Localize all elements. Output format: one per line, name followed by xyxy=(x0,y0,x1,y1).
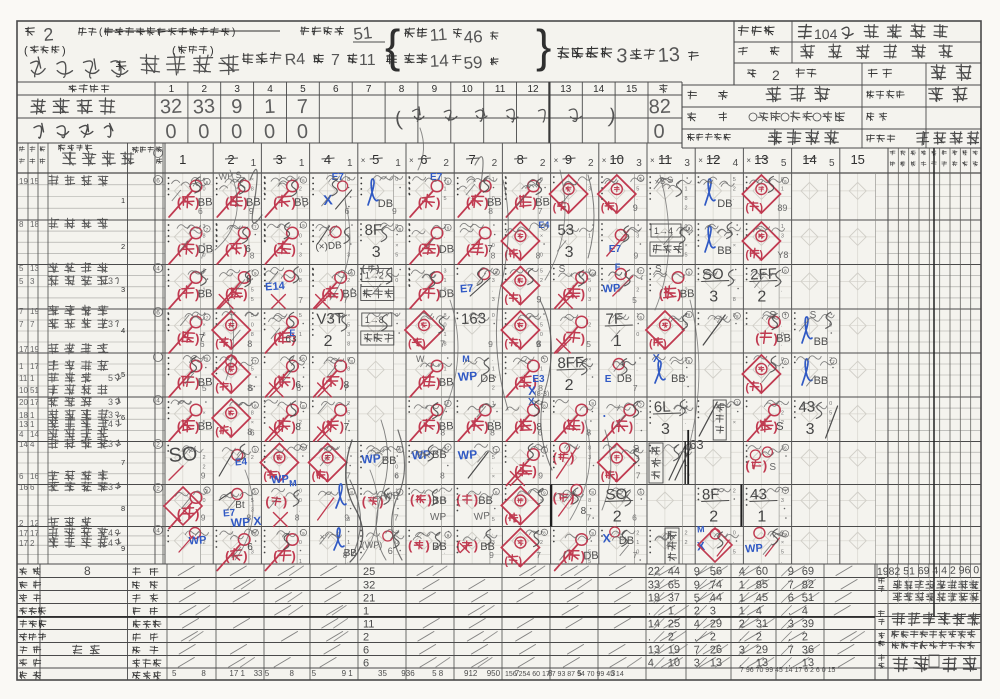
svg-text:8F: 8F xyxy=(364,221,382,239)
svg-text:14: 14 xyxy=(802,152,816,167)
svg-text:9: 9 xyxy=(489,550,494,560)
svg-text:9: 9 xyxy=(694,579,701,591)
svg-text:BB: BB xyxy=(439,376,454,389)
svg-text:6: 6 xyxy=(198,206,203,216)
svg-text:2: 2 xyxy=(781,411,784,417)
svg-text:×: × xyxy=(685,243,688,249)
svg-text:): ) xyxy=(518,249,522,261)
svg-text:18: 18 xyxy=(19,411,28,420)
svg-text:1: 1 xyxy=(299,559,302,565)
svg-text:11: 11 xyxy=(19,374,28,383)
svg-text:3: 3 xyxy=(636,455,639,461)
svg-text:(: ( xyxy=(408,538,413,553)
svg-text:36: 36 xyxy=(802,644,815,657)
svg-text:17: 17 xyxy=(30,529,39,538)
svg-text:): ) xyxy=(663,338,667,350)
svg-text:×: × xyxy=(395,243,398,249)
svg-text:8: 8 xyxy=(343,550,348,560)
svg-text:): ) xyxy=(243,287,248,302)
svg-text:7: 7 xyxy=(344,383,349,393)
svg-text:0: 0 xyxy=(829,323,832,329)
svg-text:5: 5 xyxy=(829,411,832,417)
svg-text:5: 5 xyxy=(444,196,447,202)
svg-text:(: ( xyxy=(215,426,219,438)
svg-text:(: ( xyxy=(265,494,270,509)
svg-text:7: 7 xyxy=(331,52,340,69)
svg-text:9: 9 xyxy=(536,295,541,305)
svg-text:(: ( xyxy=(745,458,750,473)
svg-text:E14: E14 xyxy=(265,280,286,293)
svg-text:3: 3 xyxy=(616,45,628,68)
svg-text:19: 19 xyxy=(30,345,39,354)
svg-text:(: ( xyxy=(745,249,749,261)
svg-text:S: S xyxy=(810,310,817,321)
svg-text:2: 2 xyxy=(363,632,369,644)
svg-text:6: 6 xyxy=(363,645,369,657)
svg-text:32: 32 xyxy=(159,95,182,118)
svg-text:51: 51 xyxy=(802,592,815,605)
svg-text:12: 12 xyxy=(706,152,720,167)
svg-text:): ) xyxy=(759,249,763,261)
svg-text:(: ( xyxy=(263,471,267,483)
svg-text:9: 9 xyxy=(392,206,397,216)
svg-text:WP: WP xyxy=(457,447,477,462)
svg-text:5: 5 xyxy=(108,373,113,383)
svg-text:8: 8 xyxy=(517,152,524,167)
svg-text:): ) xyxy=(62,45,66,57)
svg-text:1: 1 xyxy=(685,187,688,193)
svg-text:(: ( xyxy=(601,471,605,483)
svg-text:9 1: 9 1 xyxy=(342,669,354,678)
svg-text:85: 85 xyxy=(756,579,769,592)
svg-text:WP: WP xyxy=(474,511,491,523)
svg-text:2: 2 xyxy=(492,386,495,392)
svg-text:3: 3 xyxy=(684,158,690,169)
svg-text:F: F xyxy=(615,262,621,272)
svg-text:1: 1 xyxy=(363,606,369,618)
svg-text:5: 5 xyxy=(203,420,206,426)
svg-text:1: 1 xyxy=(636,540,639,546)
svg-text:(: ( xyxy=(410,492,415,507)
svg-text:89: 89 xyxy=(777,203,787,213)
svg-text:(: ( xyxy=(553,202,557,214)
svg-text:6: 6 xyxy=(156,178,160,185)
svg-text:5: 5 xyxy=(172,669,177,678)
svg-text:5: 5 xyxy=(19,277,24,286)
svg-text:15: 15 xyxy=(30,177,39,186)
svg-text:7: 7 xyxy=(366,84,372,95)
svg-text:1: 1 xyxy=(540,367,543,373)
svg-text:3: 3 xyxy=(492,278,495,284)
svg-text:5: 5 xyxy=(781,158,787,169)
svg-text:9: 9 xyxy=(432,84,438,95)
svg-text:5: 5 xyxy=(347,411,350,417)
svg-text:6: 6 xyxy=(333,84,339,95)
svg-text:2: 2 xyxy=(709,509,718,526)
svg-text:.: . xyxy=(648,605,652,617)
svg-text:M: M xyxy=(462,354,470,364)
svg-text:3: 3 xyxy=(709,289,718,306)
svg-text:5: 5 xyxy=(312,669,317,678)
svg-text:(: ( xyxy=(504,556,508,568)
svg-text:8: 8 xyxy=(440,471,445,481)
svg-text:2: 2 xyxy=(492,158,498,169)
svg-text:19: 19 xyxy=(30,307,39,316)
svg-text:1: 1 xyxy=(781,224,784,230)
svg-text:0: 0 xyxy=(203,498,206,504)
svg-text:5: 5 xyxy=(540,269,543,275)
svg-text:9: 9 xyxy=(538,471,543,481)
svg-text:1: 1 xyxy=(19,362,24,371)
svg-text:18: 18 xyxy=(30,220,39,229)
svg-text:×: × xyxy=(203,323,206,329)
svg-text:13: 13 xyxy=(30,264,39,273)
svg-text:6: 6 xyxy=(632,513,637,523)
svg-text:DB: DB xyxy=(717,198,732,210)
svg-text:7: 7 xyxy=(298,295,303,305)
svg-text:5: 5 xyxy=(251,288,254,294)
svg-text:2: 2 xyxy=(756,631,763,643)
svg-text:6: 6 xyxy=(30,483,35,492)
svg-text:53: 53 xyxy=(557,221,574,239)
svg-text:3: 3 xyxy=(108,276,113,286)
svg-text:2: 2 xyxy=(685,206,688,212)
svg-text:6: 6 xyxy=(19,472,24,481)
svg-text:1: 1 xyxy=(492,177,495,183)
svg-text:10: 10 xyxy=(19,386,28,395)
svg-text:7: 7 xyxy=(636,471,641,481)
svg-text:2: 2 xyxy=(251,455,254,461)
svg-text:6: 6 xyxy=(156,310,160,317)
svg-text:3: 3 xyxy=(565,244,574,261)
svg-text:4: 4 xyxy=(108,538,113,548)
svg-text:6: 6 xyxy=(388,546,393,556)
svg-text:9: 9 xyxy=(231,96,243,119)
svg-text:×: × xyxy=(409,156,414,165)
svg-text:4: 4 xyxy=(108,528,113,538)
svg-text:2: 2 xyxy=(733,187,736,193)
svg-text:9: 9 xyxy=(121,544,125,553)
svg-text:1: 1 xyxy=(395,158,401,169)
svg-text:9: 9 xyxy=(536,339,541,349)
svg-text:1: 1 xyxy=(347,158,353,169)
svg-text:5: 5 xyxy=(586,339,591,349)
svg-text:3: 3 xyxy=(694,657,701,669)
svg-text:): ) xyxy=(532,464,537,479)
svg-text:2: 2 xyxy=(121,242,125,251)
svg-text:×: × xyxy=(554,156,559,165)
svg-text:39: 39 xyxy=(802,618,815,631)
svg-text:37: 37 xyxy=(668,592,681,605)
svg-text:13: 13 xyxy=(560,84,572,95)
svg-text:8: 8 xyxy=(538,383,543,393)
svg-text:26: 26 xyxy=(710,644,723,657)
svg-text:17 1: 17 1 xyxy=(229,669,245,678)
svg-text:E: E xyxy=(605,374,612,385)
svg-text:2: 2 xyxy=(588,158,594,169)
svg-text:13: 13 xyxy=(754,152,768,167)
svg-text:(: ( xyxy=(745,382,749,394)
svg-text:5: 5 xyxy=(588,278,591,284)
svg-text:2: 2 xyxy=(227,152,234,167)
svg-text:7: 7 xyxy=(344,422,350,433)
svg-text:1: 1 xyxy=(739,592,746,604)
svg-text:2: 2 xyxy=(613,509,622,526)
svg-text:×: × xyxy=(602,156,607,165)
svg-text:): ) xyxy=(567,202,571,214)
svg-text:2: 2 xyxy=(156,486,160,493)
svg-text:1: 1 xyxy=(251,158,257,169)
svg-text:): ) xyxy=(763,458,767,473)
svg-text:7: 7 xyxy=(633,550,638,560)
svg-text:0: 0 xyxy=(829,401,832,407)
svg-text:2: 2 xyxy=(781,420,784,426)
svg-text:19: 19 xyxy=(668,644,681,657)
svg-text:5: 5 xyxy=(19,264,24,273)
svg-text:9: 9 xyxy=(201,513,206,523)
svg-text:3: 3 xyxy=(636,234,639,240)
svg-text:0: 0 xyxy=(636,332,639,338)
svg-text:0: 0 xyxy=(299,489,302,495)
svg-text:5: 5 xyxy=(249,383,254,393)
svg-text:8: 8 xyxy=(295,513,300,523)
svg-text:43: 43 xyxy=(798,398,815,416)
svg-text:5: 5 xyxy=(444,498,447,504)
svg-text:): ) xyxy=(580,331,585,346)
svg-text:6: 6 xyxy=(394,471,399,481)
svg-text:1→2: 1→2 xyxy=(365,271,384,281)
svg-text:WP: WP xyxy=(457,369,477,384)
svg-text:0: 0 xyxy=(299,269,302,275)
svg-text:8: 8 xyxy=(588,498,591,504)
svg-text:2: 2 xyxy=(299,187,302,193)
svg-text:): ) xyxy=(291,549,296,564)
svg-text:11: 11 xyxy=(495,84,506,95)
svg-text:2: 2 xyxy=(685,540,688,546)
svg-text:(: ( xyxy=(745,202,749,214)
svg-text:44: 44 xyxy=(710,592,723,605)
svg-text:8: 8 xyxy=(444,288,447,294)
svg-text:1: 1 xyxy=(739,579,746,591)
svg-text:4: 4 xyxy=(739,566,746,578)
svg-text:2: 2 xyxy=(347,550,350,556)
svg-text:1: 1 xyxy=(179,152,186,167)
svg-text:1: 1 xyxy=(264,96,276,119)
svg-text:7: 7 xyxy=(343,295,348,305)
svg-text:1: 1 xyxy=(30,420,35,429)
svg-text:7: 7 xyxy=(394,513,399,523)
svg-text:60: 60 xyxy=(756,565,769,578)
svg-text:2: 2 xyxy=(802,631,809,643)
svg-text:3: 3 xyxy=(347,332,350,338)
svg-text:×: × xyxy=(251,420,254,426)
svg-text:2: 2 xyxy=(156,442,160,449)
svg-text:DB: DB xyxy=(378,198,393,210)
svg-text:5: 5 xyxy=(829,158,835,169)
svg-text:2: 2 xyxy=(565,377,574,394)
svg-text:X: X xyxy=(323,191,334,208)
svg-text:11: 11 xyxy=(658,152,672,167)
svg-text:): ) xyxy=(436,195,441,210)
svg-text:31: 31 xyxy=(756,618,769,631)
svg-text:(: ( xyxy=(504,294,508,306)
svg-text:5: 5 xyxy=(300,84,306,95)
svg-text:2: 2 xyxy=(772,67,780,83)
svg-text:8: 8 xyxy=(440,428,445,438)
svg-text:): ) xyxy=(283,494,287,509)
svg-text:8: 8 xyxy=(203,332,206,338)
svg-text:10: 10 xyxy=(609,152,623,167)
svg-text:3: 3 xyxy=(806,421,815,438)
svg-text:8: 8 xyxy=(121,504,125,513)
svg-text:1: 1 xyxy=(444,540,447,546)
svg-text:5: 5 xyxy=(829,420,832,426)
svg-text:0: 0 xyxy=(198,121,211,144)
svg-text:7: 7 xyxy=(633,383,638,393)
svg-text:4: 4 xyxy=(121,326,125,335)
svg-text:16: 16 xyxy=(30,472,39,481)
svg-text:1: 1 xyxy=(739,605,746,617)
svg-text:0: 0 xyxy=(203,187,206,193)
svg-text:45: 45 xyxy=(756,592,769,605)
svg-text:3: 3 xyxy=(372,244,381,261)
svg-text:9: 9 xyxy=(788,566,795,578)
svg-text:950: 950 xyxy=(487,669,501,678)
svg-text:2: 2 xyxy=(203,455,206,461)
svg-text:BB: BB xyxy=(717,245,732,257)
svg-text:2: 2 xyxy=(733,489,736,495)
svg-text:16: 16 xyxy=(19,483,28,492)
svg-text:2: 2 xyxy=(739,618,746,630)
svg-text:WP: WP xyxy=(430,512,446,523)
svg-text:): ) xyxy=(376,264,379,275)
svg-text:29: 29 xyxy=(710,618,723,631)
svg-text:4: 4 xyxy=(30,440,35,449)
svg-text:7: 7 xyxy=(788,644,795,656)
svg-text:0: 0 xyxy=(296,121,309,144)
svg-text:7 96 70 99 45 14 17 6 2 6 0 15: 7 96 70 99 45 14 17 6 2 6 0 15 xyxy=(740,667,835,674)
svg-text:14: 14 xyxy=(30,430,39,439)
svg-text:8: 8 xyxy=(251,411,254,417)
svg-text:×: × xyxy=(347,498,350,504)
svg-text:4: 4 xyxy=(648,657,655,669)
svg-text:3: 3 xyxy=(251,550,254,556)
svg-text:): ) xyxy=(518,514,522,526)
svg-text:M: M xyxy=(289,478,297,488)
svg-text:3: 3 xyxy=(444,269,447,275)
svg-text:0: 0 xyxy=(492,313,495,319)
svg-text:E7: E7 xyxy=(460,283,474,296)
svg-text:2: 2 xyxy=(347,401,350,407)
svg-text:59: 59 xyxy=(463,53,483,73)
svg-text:0: 0 xyxy=(781,332,784,338)
svg-text:3: 3 xyxy=(395,531,398,537)
svg-text:3: 3 xyxy=(108,439,113,449)
svg-text:6: 6 xyxy=(363,658,369,670)
svg-text:5: 5 xyxy=(251,313,254,319)
svg-text:Y8: Y8 xyxy=(777,250,788,260)
svg-text:9: 9 xyxy=(488,339,493,349)
svg-text:×: × xyxy=(540,498,543,504)
svg-text:2: 2 xyxy=(347,278,350,284)
svg-text:5: 5 xyxy=(492,517,495,523)
svg-text:7: 7 xyxy=(200,251,205,261)
svg-text:BB: BB xyxy=(671,373,686,385)
svg-text:S: S xyxy=(769,462,776,473)
svg-text:4: 4 xyxy=(156,528,160,535)
svg-text:9: 9 xyxy=(633,203,638,213)
svg-text:0: 0 xyxy=(263,121,276,144)
svg-text:1: 1 xyxy=(299,332,302,338)
svg-text:0: 0 xyxy=(395,177,398,183)
svg-text:1: 1 xyxy=(30,411,35,420)
svg-text:M: M xyxy=(697,524,705,534)
svg-text:9: 9 xyxy=(344,513,349,523)
svg-text:2: 2 xyxy=(443,158,449,169)
svg-text:): ) xyxy=(615,471,619,483)
svg-text:7: 7 xyxy=(19,307,24,316)
svg-text:1→4: 1→4 xyxy=(654,226,673,236)
svg-text:5: 5 xyxy=(685,253,688,259)
svg-text:3: 3 xyxy=(108,482,113,492)
svg-text:8: 8 xyxy=(19,220,24,229)
svg-text:5: 5 xyxy=(781,550,784,556)
svg-text:3: 3 xyxy=(781,234,784,240)
svg-text:2: 2 xyxy=(636,288,639,294)
svg-text:3: 3 xyxy=(636,158,642,169)
svg-text:×: × xyxy=(492,474,495,480)
svg-text:0: 0 xyxy=(299,540,302,546)
svg-text:2: 2 xyxy=(324,333,333,350)
svg-text:8: 8 xyxy=(733,297,736,303)
svg-text:3: 3 xyxy=(661,421,670,438)
svg-text:15: 15 xyxy=(626,84,638,95)
svg-text:1: 1 xyxy=(444,187,447,193)
svg-text:7: 7 xyxy=(536,550,541,560)
svg-text:8: 8 xyxy=(347,367,350,373)
svg-text:×: × xyxy=(698,156,703,165)
svg-text:2: 2 xyxy=(43,24,55,45)
svg-text:×: × xyxy=(685,411,688,417)
svg-text:5: 5 xyxy=(299,313,302,319)
svg-text:13: 13 xyxy=(19,420,28,429)
svg-text:(: ( xyxy=(215,338,219,350)
svg-text:3: 3 xyxy=(108,319,113,329)
svg-text:): ) xyxy=(759,202,763,214)
svg-text:1982 51 69 4 4 2 96 0: 1982 51 69 4 4 2 96 0 xyxy=(877,564,980,578)
svg-text:2: 2 xyxy=(694,605,701,617)
svg-text:×: × xyxy=(588,357,591,363)
svg-text:5: 5 xyxy=(251,367,254,373)
svg-text:8: 8 xyxy=(399,84,405,95)
svg-text:5: 5 xyxy=(492,455,495,461)
svg-text:1: 1 xyxy=(613,333,622,350)
svg-text:8: 8 xyxy=(203,234,206,240)
svg-text:2: 2 xyxy=(30,539,35,548)
svg-text:35: 35 xyxy=(378,669,387,678)
svg-text:): ) xyxy=(229,426,233,438)
svg-text:8: 8 xyxy=(203,243,206,249)
svg-text:4: 4 xyxy=(156,266,160,273)
svg-text:7: 7 xyxy=(788,579,795,591)
svg-text:): ) xyxy=(580,419,585,434)
svg-text:3: 3 xyxy=(492,540,495,546)
svg-text:13: 13 xyxy=(657,44,680,67)
svg-text:×: × xyxy=(203,411,206,417)
svg-text:8: 8 xyxy=(491,251,496,261)
svg-text:8: 8 xyxy=(250,251,255,261)
svg-text:BB: BB xyxy=(814,375,829,387)
